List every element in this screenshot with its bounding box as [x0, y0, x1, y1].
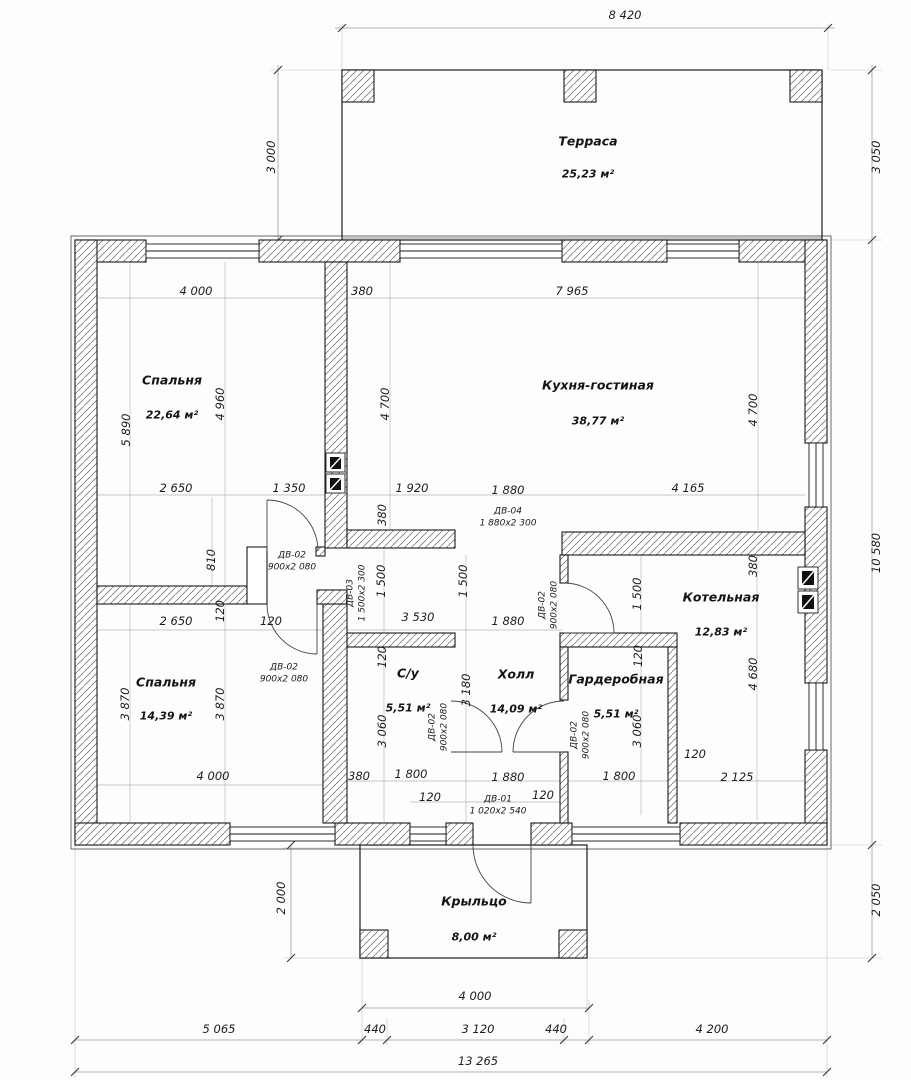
floor-plan: Терраса25,23 м²Спальня22,64 м²Кухня-гост…	[0, 0, 911, 1080]
interior-walls	[97, 262, 805, 823]
porch-columns	[360, 930, 587, 958]
plan-geometry	[0, 0, 911, 1080]
terrace-columns	[342, 70, 822, 102]
porch-outline	[360, 845, 587, 958]
terrace-outline	[342, 70, 822, 240]
door-pier	[247, 547, 267, 604]
